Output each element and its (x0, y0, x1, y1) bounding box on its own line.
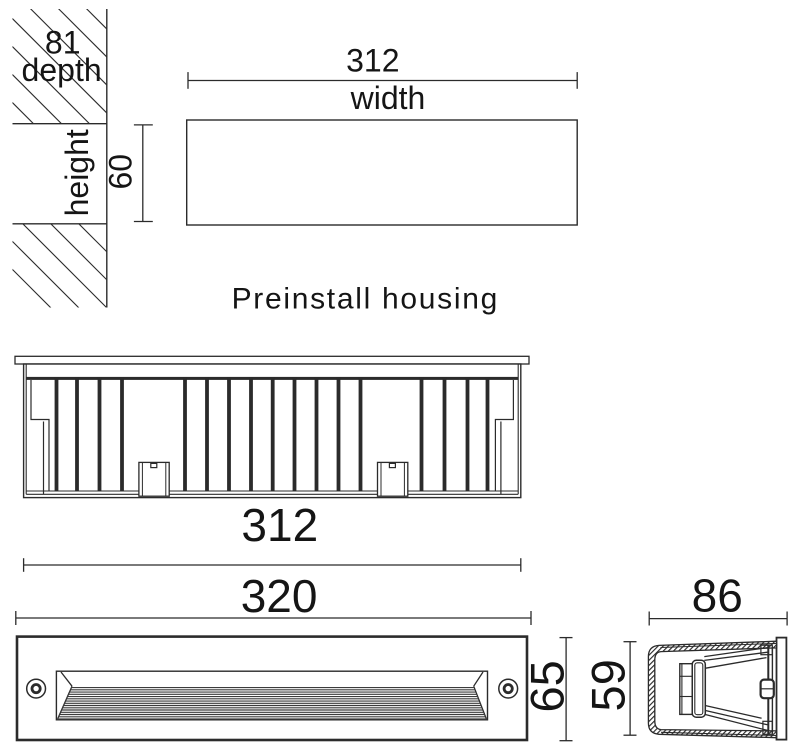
svg-text:depth: depth (22, 52, 102, 88)
svg-text:width: width (350, 80, 426, 116)
svg-text:65: 65 (521, 660, 574, 712)
svg-text:312: 312 (241, 499, 318, 551)
svg-text:height: height (59, 129, 95, 216)
svg-text:86: 86 (692, 570, 743, 622)
svg-text:59: 59 (582, 659, 635, 711)
svg-text:320: 320 (241, 570, 318, 622)
svg-text:Preinstall housing: Preinstall housing (232, 283, 499, 316)
svg-text:60: 60 (103, 154, 139, 190)
svg-text:312: 312 (346, 43, 399, 79)
